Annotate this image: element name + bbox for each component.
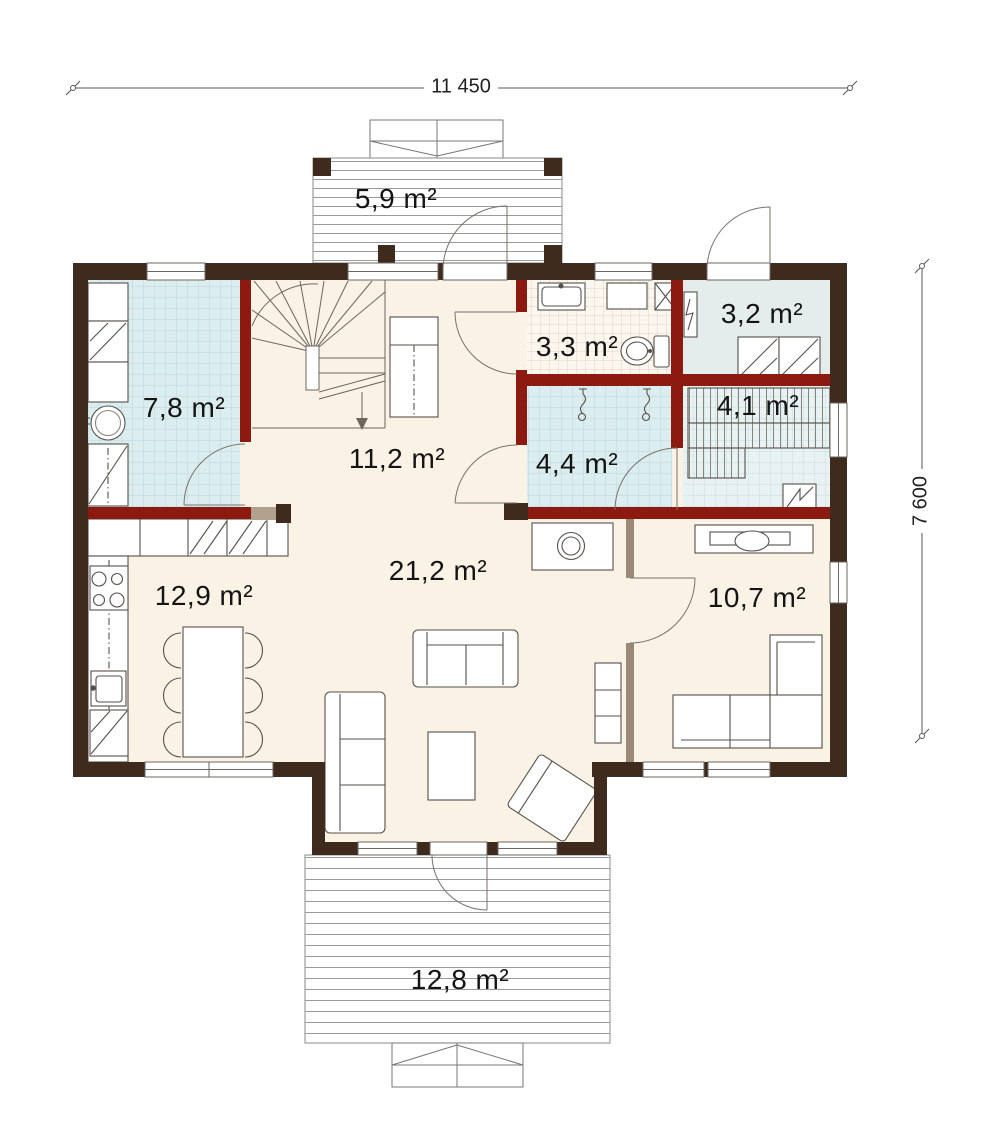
window-living-1 <box>358 842 417 855</box>
room-label-kitchen: 12,9 m² <box>155 580 253 612</box>
wall-post <box>504 503 528 520</box>
window-sauna <box>830 403 847 457</box>
dimension-width-label: 11 450 <box>424 76 498 99</box>
room-label-bathroom: 3,3 m² <box>536 331 618 363</box>
hall-wardrobe <box>390 317 438 417</box>
bathroom-sink <box>538 283 585 310</box>
room-label-utility-room: 7,8 m² <box>143 392 225 424</box>
sofa-three-seat <box>325 692 385 833</box>
porch-post <box>544 158 562 176</box>
bathroom-cabinet <box>607 283 647 309</box>
window-bathroom <box>595 263 652 280</box>
room-label-living-room: 21,2 m² <box>389 555 487 587</box>
window-bedroom-south-1 <box>643 762 704 777</box>
tech-wardrobes <box>738 337 820 378</box>
toilet <box>621 336 669 367</box>
coffee-table <box>428 732 475 800</box>
dining-table <box>183 627 243 757</box>
dresser <box>695 525 813 553</box>
room-label-tech-room: 3,2 m² <box>721 298 803 330</box>
dimension-height-label: 7 600 <box>910 469 933 533</box>
window-bedroom-east <box>830 562 847 603</box>
room-label-hall: 11,2 m² <box>349 443 445 475</box>
kitchen-sink <box>91 671 126 706</box>
sofa-two-seat <box>413 630 518 687</box>
kitchen-half-wall <box>251 507 277 520</box>
room-label-bedroom: 10,7 m² <box>708 582 806 614</box>
stove-table <box>532 523 613 570</box>
room-label-sauna: 4,1 m² <box>717 390 799 422</box>
window-hall-porch <box>348 263 438 280</box>
wall-post <box>276 504 291 523</box>
window-bedroom-south-2 <box>708 762 770 777</box>
fridge <box>90 710 128 756</box>
entrance-door-opening <box>443 263 507 280</box>
bookshelf <box>595 663 621 743</box>
floor-plan-canvas: 11 450 7 600 5,9 m² 7,8 m² 11,2 m² 3,3 m… <box>0 0 1000 1133</box>
utility-cabinets <box>88 283 128 506</box>
tech-door-opening <box>707 263 770 280</box>
porch-post <box>313 158 331 176</box>
room-label-entry-porch: 5,9 m² <box>355 183 437 215</box>
entry-porch-deck <box>313 120 562 263</box>
porch-post <box>378 245 395 263</box>
window-utility <box>147 263 205 280</box>
room-label-shower-room: 4,4 m² <box>536 448 618 480</box>
electrical-panel <box>684 292 697 337</box>
kitchen-wall-cabinets <box>88 519 288 556</box>
terrace-door-opening <box>430 842 487 855</box>
room-label-terrace: 12,8 m² <box>411 964 509 996</box>
stove <box>90 566 128 610</box>
window-living-2 <box>498 842 557 855</box>
porch-post <box>544 245 562 263</box>
tech-room-door <box>707 207 770 270</box>
window-kitchen <box>145 762 273 777</box>
